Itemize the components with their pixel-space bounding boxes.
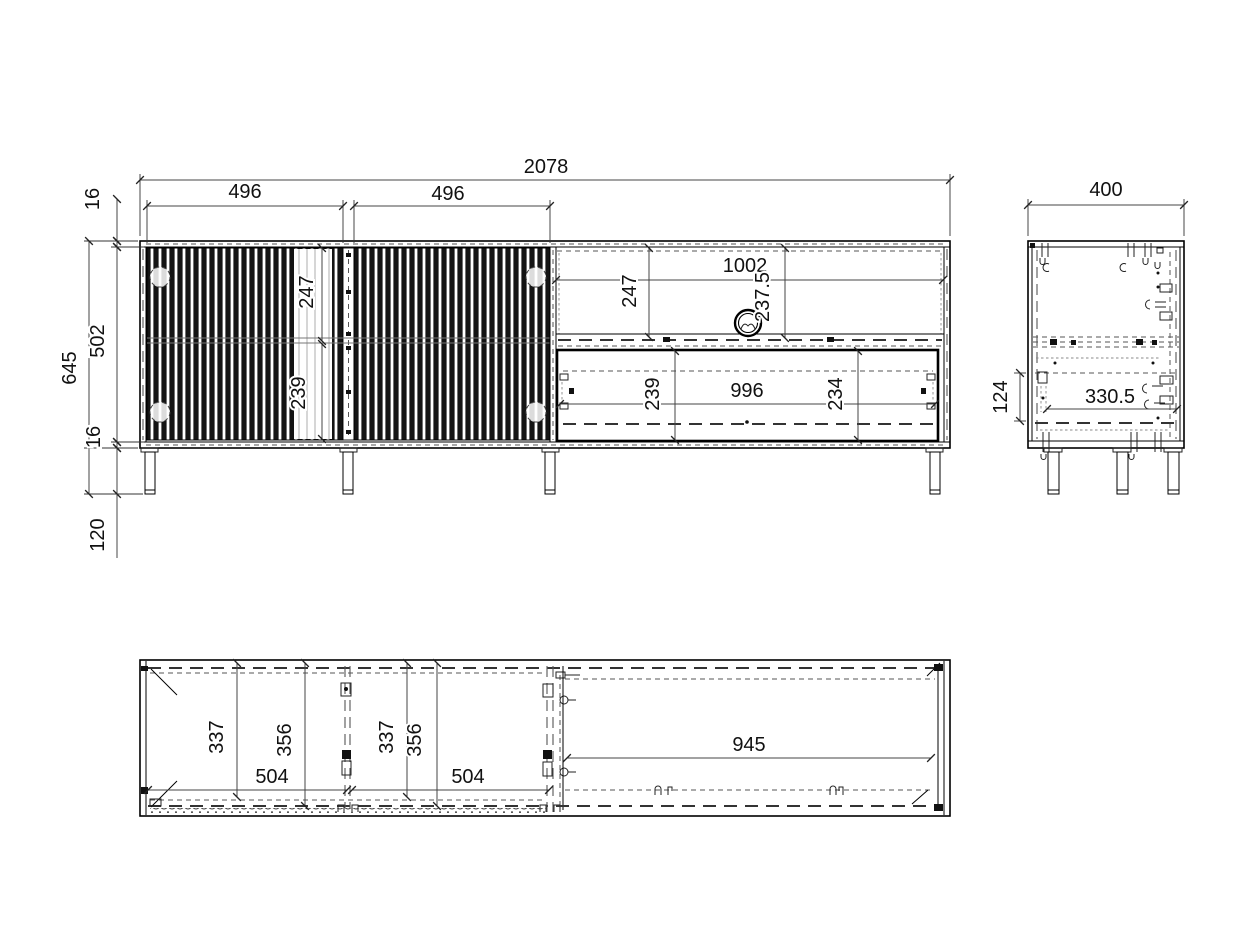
dim-depth: 400	[1089, 179, 1122, 201]
dim-plan-niche-width: 945	[732, 734, 765, 756]
dim-drawer-left: 239	[642, 377, 664, 410]
hinge-circle-bottom-right	[526, 402, 546, 422]
side-dimensions: 400 330.5 124	[990, 179, 1184, 421]
front-middle-stile	[343, 248, 354, 440]
dim-plan-door1-b: 356	[274, 723, 296, 756]
dim-door-lower: 239	[288, 376, 310, 409]
technical-drawing-canvas: 2078 496 496 16 502 645 16 120 247 239 1…	[0, 0, 1250, 937]
front-legs	[141, 448, 943, 494]
dim-bottom-panel: 16	[83, 426, 105, 448]
dim-niche-height: 247	[619, 274, 641, 307]
dim-cable-offset: 237.5	[752, 272, 774, 322]
side-legs	[1044, 448, 1182, 494]
dim-left-door-width: 496	[228, 181, 261, 203]
furniture-dimension-drawing: 2078 496 496 16 502 645 16 120 247 239 1…	[0, 0, 1250, 937]
dim-inner-height: 502	[87, 324, 109, 357]
hinge-circle-top-right	[526, 267, 546, 287]
dim-drawer-right: 234	[825, 377, 847, 410]
dim-plan-door2-a: 337	[376, 720, 398, 753]
side-drawer-slides	[1033, 337, 1179, 365]
dim-right-door-width: 496	[431, 183, 464, 205]
dim-total-height: 645	[59, 351, 81, 384]
plan-outline	[140, 660, 950, 816]
side-hardware-top	[1040, 243, 1172, 320]
plan-dimensions: 337 356 504 337 356 504 945	[148, 663, 931, 806]
plan-view: 337 356 504 337 356 504 945	[140, 660, 950, 816]
side-view: 400 330.5 124	[990, 179, 1184, 494]
hinge-circle-bottom-left	[150, 402, 170, 422]
dim-inner-depth: 330.5	[1085, 386, 1135, 408]
dim-drawer-width: 996	[730, 380, 763, 402]
front-divider-wall	[550, 247, 556, 442]
dim-total-width: 2078	[524, 156, 569, 178]
dim-door-upper: 247	[296, 275, 318, 308]
front-right-door	[354, 248, 550, 440]
dim-leg-height: 120	[87, 518, 109, 551]
dim-drawer-offset: 124	[990, 380, 1012, 413]
front-view: 2078 496 496 16 502 645 16 120 247 239 1…	[59, 156, 950, 558]
plan-fluted-front-edge	[150, 808, 547, 813]
dim-plan-door2-b: 356	[404, 723, 426, 756]
dim-top-panel: 16	[82, 188, 104, 210]
dim-plan-door1-a: 337	[206, 720, 228, 753]
hinge-circle-top-left	[150, 267, 170, 287]
dim-plan-door1-width: 504	[255, 766, 288, 788]
dim-plan-door2-width: 504	[451, 766, 484, 788]
